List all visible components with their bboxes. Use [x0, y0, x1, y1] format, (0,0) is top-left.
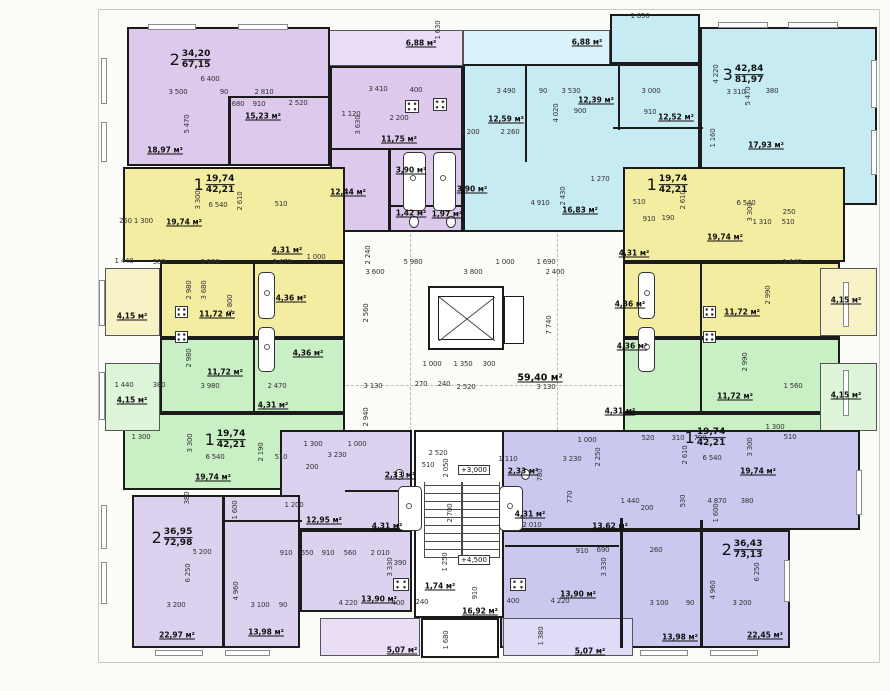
stair-area-label: 16,92 м²	[462, 607, 498, 616]
dimension-label: 3 000	[641, 87, 660, 95]
dimension-label: 1 000	[347, 440, 366, 448]
room-area-label: 11,72 м²	[199, 310, 235, 319]
dimension-label: 1 160	[709, 128, 717, 147]
apartment-label: 119,7442,21	[194, 174, 235, 196]
window	[101, 58, 107, 104]
window	[843, 282, 849, 327]
dimension-label: 3 680	[200, 280, 208, 299]
apartment-number: 1	[205, 432, 215, 448]
apartment-area-fraction: 36,4373,13	[734, 539, 762, 561]
dimension-label: 3 300	[746, 437, 754, 456]
interior-wall	[525, 64, 527, 162]
room-area-label: 4,31 м²	[372, 522, 403, 531]
dimension-label: 510	[784, 433, 797, 441]
apartment-label: 342,8481,97	[723, 64, 764, 86]
apartment-total-area: 73,13	[734, 551, 762, 561]
dimension-label: 90	[539, 87, 548, 95]
dimension-label: 1 440	[114, 257, 133, 265]
room-area-label: 13,90 м²	[361, 595, 397, 604]
apartment-number: 3	[723, 67, 733, 83]
interior-wall	[618, 64, 620, 130]
dimension-label: 6 250	[753, 562, 761, 581]
dimension-label: 5 470	[744, 86, 752, 105]
apartment-total-area: 72,98	[164, 539, 192, 549]
apartment-label: 119,7442,21	[205, 429, 246, 451]
dimension-label: 3 310	[726, 88, 745, 96]
dimension-label: 910	[253, 100, 266, 108]
room-area-label: 13,98 м²	[662, 633, 698, 642]
dimension-label: 90	[686, 599, 695, 607]
dimension-label: 690	[597, 546, 610, 554]
dimension-label: 2 980	[185, 280, 193, 299]
dimension-label: 1 380	[537, 626, 545, 645]
apartment-zone	[132, 495, 300, 648]
room-area-label: 4,31 м²	[272, 246, 303, 255]
room-area-label: 4,31 м²	[619, 249, 650, 258]
apartment-total-area: 81,97	[735, 76, 763, 86]
room-area-label: 1,97 м²	[432, 210, 463, 219]
dimension-label: 5 200	[192, 548, 211, 556]
dimension-label: 910	[643, 215, 656, 223]
dimension-label: 3 130	[363, 382, 382, 390]
bathtub-icon	[403, 152, 426, 211]
stove-icon	[510, 578, 526, 591]
dimension-label: 4 960	[232, 581, 240, 600]
apartment-label: 119,7442,21	[685, 427, 726, 449]
dimension-label: 910	[471, 587, 479, 600]
dimension-label: 900	[574, 107, 587, 115]
dimension-label: 6 540	[208, 201, 227, 209]
axis-line	[557, 234, 558, 430]
dimension-label: 1 310	[752, 218, 771, 226]
apartment-number: 1	[685, 430, 695, 446]
room-area-label: 13,90 м²	[560, 590, 596, 599]
dimension-label: 190	[662, 214, 675, 222]
room-area-label: 11,72 м²	[207, 368, 243, 377]
stove-icon	[703, 306, 716, 318]
dimension-label: 2 470	[272, 258, 291, 266]
window	[155, 650, 203, 656]
apartment-number: 1	[194, 177, 204, 193]
dimension-label: 380	[153, 258, 166, 266]
dimension-label: 2 010	[522, 521, 541, 529]
room-area-label: 1,42 м²	[396, 209, 427, 218]
dimension-label: 90	[220, 88, 229, 96]
dimension-label: 380	[741, 497, 754, 505]
apartment-living-area: 19,74	[206, 174, 234, 185]
dimension-label: 2 560	[362, 303, 370, 322]
room-area-label: 6,88 м²	[406, 39, 437, 48]
dimension-label: 1 440	[620, 497, 639, 505]
room-area-label: 19,74 м²	[195, 473, 231, 482]
room-area-label: 4,36 м²	[617, 342, 648, 351]
dimension-label: 1 000	[495, 258, 514, 266]
apartment-zone	[500, 430, 860, 530]
interior-wall	[228, 96, 332, 98]
balcony-zone	[105, 268, 160, 336]
room-area-label: 13,62 м²	[592, 522, 628, 531]
dimension-label: 310	[672, 434, 685, 442]
dimension-label: 2 610	[236, 191, 244, 210]
room-area-label: 4,15 м²	[117, 396, 148, 405]
dimension-label: 2 190	[257, 442, 265, 461]
dimension-label: 650	[301, 549, 314, 557]
room-area-label: 4,31 м²	[605, 407, 636, 416]
window	[710, 650, 758, 656]
dimension-label: 3 330	[600, 557, 608, 576]
room-area-label: 4,36 м²	[293, 349, 324, 358]
dimension-label: 4 220	[338, 599, 357, 607]
dimension-label: 90	[279, 601, 288, 609]
dimension-label: 1 560	[783, 382, 802, 390]
dimension-label: 1 300	[131, 433, 150, 441]
apartment-total-area: 42,21	[217, 441, 245, 451]
room-area-label: 4,15 м²	[831, 391, 862, 400]
bathtub-icon	[638, 272, 655, 319]
apartment-living-area: 34,20	[182, 49, 210, 60]
dimension-label: 3 980	[200, 258, 219, 266]
dimension-label: 680	[232, 100, 245, 108]
interior-wall	[700, 338, 702, 413]
dimension-label: 910	[576, 547, 589, 555]
dimension-label: 2 990	[741, 352, 749, 371]
dimension-label: 3 130	[536, 383, 555, 391]
dimension-label: 270	[415, 380, 428, 388]
dimension-label: 3 200	[732, 599, 751, 607]
room-area-label: 11,72 м²	[717, 392, 753, 401]
room-area-label: 18,97 м²	[147, 146, 183, 155]
stair-exit	[421, 618, 499, 658]
dimension-label: 2 260	[500, 128, 519, 136]
dimension-label: 1 630	[434, 20, 442, 39]
dimension-label: 3 630	[354, 115, 362, 134]
window	[718, 22, 768, 28]
dimension-label: 2 050	[442, 458, 450, 477]
dimension-label: 560	[344, 549, 357, 557]
room-area-label: 5,07 м²	[575, 647, 606, 656]
dimension-label: 1 270	[590, 175, 609, 183]
dimension-label: 510	[422, 461, 435, 469]
dimension-label: 2 470	[267, 382, 286, 390]
bathtub-icon	[258, 272, 275, 319]
room-area-label: 2,33 м²	[508, 467, 539, 476]
dimension-label: 510	[782, 218, 795, 226]
dimension-label: 3 800	[463, 268, 482, 276]
dimension-label: 1 440	[114, 381, 133, 389]
apartment-living-area: 19,74	[659, 174, 687, 185]
room-area-label: 12,52 м²	[658, 113, 694, 122]
apartment-living-area: 36,95	[164, 527, 192, 538]
dimension-label: 2 810	[254, 88, 273, 96]
dimension-label: 380	[153, 381, 166, 389]
stair-area-label: 1,74 м²	[425, 582, 456, 591]
dimension-label: 3 100	[250, 601, 269, 609]
interior-wall	[222, 495, 225, 648]
room-area-label: 5,07 м²	[387, 646, 418, 655]
stove-icon	[433, 98, 447, 111]
dimension-label: 1 600	[231, 500, 239, 519]
room-area-label: 4,36 м²	[615, 300, 646, 309]
window	[784, 560, 790, 602]
dimension-label: 1 690	[536, 258, 555, 266]
dimension-label: 1 200	[460, 128, 479, 136]
room-area-label: 11,75 м²	[381, 135, 417, 144]
corridor-area-label: 59,40 м²	[517, 373, 562, 384]
room-area-label: 12,44 м²	[330, 188, 366, 197]
dimension-label: 770	[566, 491, 574, 504]
window	[788, 22, 838, 28]
dimension-label: 3 500	[168, 88, 187, 96]
apartment-total-area: 42,21	[697, 439, 725, 449]
bathtub-icon	[499, 486, 523, 531]
room-area-label: 4,31 м²	[515, 510, 546, 519]
dimension-label: 3 530	[561, 87, 580, 95]
floor-plan-canvas: +3,000+4,5001,74 м²16,92 м²59,40 м²6 400…	[0, 0, 890, 691]
bathtub-icon	[258, 327, 275, 372]
interior-wall	[253, 338, 255, 413]
apartment-label: 234,2067,15	[170, 49, 211, 71]
room-area-label: 2,33 м²	[385, 471, 416, 480]
window	[225, 650, 270, 656]
room-area-label: 4,15 м²	[117, 312, 148, 321]
interior-wall	[228, 98, 231, 166]
dimension-label: 250 1 300	[119, 217, 153, 225]
service-duct	[504, 296, 524, 344]
room-area-label: 12,39 м²	[578, 96, 614, 105]
dimension-label: 2 240	[364, 245, 372, 264]
dimension-label: 5 980	[403, 258, 422, 266]
window	[148, 24, 196, 30]
dimension-label: 2 520	[428, 449, 447, 457]
room-area-label: 16,83 м²	[562, 206, 598, 215]
dimension-label: 530	[679, 495, 687, 508]
elevator-car	[438, 296, 494, 340]
dimension-label: 6 540	[702, 454, 721, 462]
window	[99, 372, 105, 420]
toilet-icon	[409, 216, 419, 228]
dimension-label: 240	[416, 598, 429, 606]
stove-icon	[393, 578, 409, 591]
apartment-total-area: 42,21	[206, 186, 234, 196]
dimension-label: 3 490	[496, 87, 515, 95]
bathtub-icon	[433, 152, 456, 211]
window	[871, 60, 877, 108]
apartment-area-fraction: 19,7442,21	[659, 174, 687, 196]
dimension-label: 2 980	[185, 348, 193, 367]
axis-line	[346, 385, 622, 386]
dimension-label: 6 540	[205, 453, 224, 461]
apartment-label: 236,4373,13	[722, 539, 763, 561]
dimension-label: 300	[483, 360, 496, 368]
dimension-label: 1 440	[782, 258, 801, 266]
apartment-living-area: 19,74	[217, 429, 245, 440]
dimension-label: 1 300	[303, 440, 322, 448]
window	[101, 505, 107, 549]
dimension-label: 2 520	[456, 383, 475, 391]
apartment-area-fraction: 19,7442,21	[217, 429, 245, 451]
dimension-label: 3 300	[186, 433, 194, 452]
apartment-area-fraction: 36,9572,98	[164, 527, 192, 549]
room-area-label: 22,97 м²	[159, 631, 195, 640]
dimension-label: 3 200	[166, 601, 185, 609]
dimension-label: 240	[438, 380, 451, 388]
dimension-label: 3 230	[562, 455, 581, 463]
dimension-label: 1 000	[306, 253, 325, 261]
window	[640, 650, 688, 656]
room-area-label: 12,95 м²	[306, 516, 342, 525]
dimension-label: 2 250	[594, 447, 602, 466]
room-area-label: 19,74 м²	[166, 218, 202, 227]
dimension-label: 380	[183, 492, 191, 505]
room-area-label: 19,74 м²	[707, 233, 743, 242]
dimension-label: 400	[507, 597, 520, 605]
apartment-number: 2	[152, 530, 162, 546]
apartment-label: 119,7442,21	[647, 174, 688, 196]
dimension-label: 1 250	[441, 552, 449, 571]
dimension-label: 6 400	[200, 75, 219, 83]
room-area-label: 19,74 м²	[740, 467, 776, 476]
dimension-label: 3 230	[327, 451, 346, 459]
dimension-label: 910	[322, 549, 335, 557]
apartment-area-fraction: 34,2067,15	[182, 49, 210, 71]
apartment-living-area: 42,84	[735, 64, 763, 75]
dimension-label: 400	[410, 86, 423, 94]
apartment-number: 2	[722, 542, 732, 558]
room-area-label: 22,45 м²	[747, 631, 783, 640]
dimension-label: 510	[633, 198, 646, 206]
dimension-label: 2 940	[362, 407, 370, 426]
stove-icon	[175, 306, 188, 318]
room-area-label: 15,23 м²	[245, 112, 281, 121]
window	[101, 122, 107, 162]
dimension-label: 380	[766, 87, 779, 95]
interior-wall	[388, 148, 391, 232]
dimension-label: 4 020	[552, 103, 560, 122]
interior-wall	[613, 127, 703, 129]
dimension-label: 2 520	[288, 99, 307, 107]
dimension-label: 390	[394, 559, 407, 567]
stove-icon	[175, 331, 188, 343]
dimension-label: 6 250	[184, 563, 192, 582]
apartment-number: 2	[170, 52, 180, 68]
dimension-label: 1 200	[284, 501, 303, 509]
dimension-label: 4 960	[709, 580, 717, 599]
dimension-label: 1 650	[630, 12, 649, 20]
dimension-label: 260	[650, 546, 663, 554]
room-area-label: 12,59 м²	[488, 115, 524, 124]
dimension-label: 5 470	[183, 114, 191, 133]
dimension-label: 2 400	[545, 268, 564, 276]
dimension-label: 910	[280, 549, 293, 557]
dimension-label: 2 010	[370, 549, 389, 557]
elevator-cross-icon	[439, 297, 495, 341]
apartment-number: 1	[647, 177, 657, 193]
dimension-label: 510	[275, 200, 288, 208]
dimension-label: 2 990	[764, 285, 772, 304]
room-area-label: 3,90 м²	[396, 166, 427, 175]
dimension-label: 3 600	[365, 268, 384, 276]
dimension-label: 200	[306, 463, 319, 471]
interior-wall	[332, 148, 463, 150]
room-area-label: 4,36 м²	[276, 294, 307, 303]
apartment-total-area: 67,15	[182, 61, 210, 71]
dimension-label: 2 200	[389, 114, 408, 122]
elevation-label: +3,000	[458, 465, 490, 475]
room-area-label: 3,90 м²	[457, 185, 488, 194]
dimension-label: 910	[644, 108, 657, 116]
dimension-label: 510	[275, 453, 288, 461]
window	[101, 562, 107, 604]
dimension-label: 2 430	[559, 186, 567, 205]
dimension-label: 3 980	[200, 382, 219, 390]
window	[871, 130, 877, 175]
room-area-label: 17,93 м²	[748, 141, 784, 150]
dimension-label: 1 000	[577, 436, 596, 444]
dimension-label: 4 220	[712, 64, 720, 83]
stove-icon	[703, 331, 716, 343]
apartment-label: 236,9572,98	[152, 527, 193, 549]
room-area-label: 11,72 м²	[724, 308, 760, 317]
apartment-zone	[623, 338, 840, 413]
dimension-label: 1 350	[453, 360, 472, 368]
dimension-label: 200	[641, 504, 654, 512]
balcony-zone	[503, 618, 633, 656]
room-area-label: 6,88 м²	[572, 38, 603, 47]
interior-wall	[700, 264, 702, 338]
dimension-label: 1 000	[422, 360, 441, 368]
apartment-living-area: 19,74	[697, 427, 725, 438]
dimension-label: 2 700	[446, 503, 454, 522]
dimension-label: 1 680	[442, 630, 450, 649]
window	[856, 470, 862, 515]
window	[99, 280, 105, 326]
stove-icon	[405, 100, 419, 113]
interior-wall	[253, 264, 255, 338]
balcony-zone	[463, 30, 610, 66]
apartment-area-fraction: 19,7442,21	[206, 174, 234, 196]
dimension-label: 4 910	[530, 199, 549, 207]
elevation-label: +4,500	[458, 555, 490, 565]
dimension-label: 3 410	[368, 85, 387, 93]
apartment-zone	[610, 14, 700, 64]
window	[238, 24, 288, 30]
interior-wall	[620, 518, 623, 648]
apartment-area-fraction: 42,8481,97	[735, 64, 763, 86]
dimension-label: 7 740	[545, 315, 553, 334]
interior-wall	[700, 520, 703, 648]
dimension-label: 1 110	[498, 455, 517, 463]
dimension-label: 1 300	[765, 423, 784, 431]
apartment-total-area: 42,21	[659, 186, 687, 196]
interior-wall	[222, 520, 302, 522]
room-area-label: 13,98 м²	[248, 628, 284, 637]
stair-flight-divider	[461, 482, 463, 558]
apartment-area-fraction: 19,7442,21	[697, 427, 725, 449]
dimension-label: 250	[783, 208, 796, 216]
dimension-label: 1 600	[712, 503, 720, 522]
apartment-living-area: 36,43	[734, 539, 762, 550]
room-area-label: 4,31 м²	[258, 401, 289, 410]
dimension-label: 3 100	[649, 599, 668, 607]
dimension-label: 520	[642, 434, 655, 442]
room-area-label: 4,15 м²	[831, 296, 862, 305]
apartment-zone	[623, 262, 840, 338]
